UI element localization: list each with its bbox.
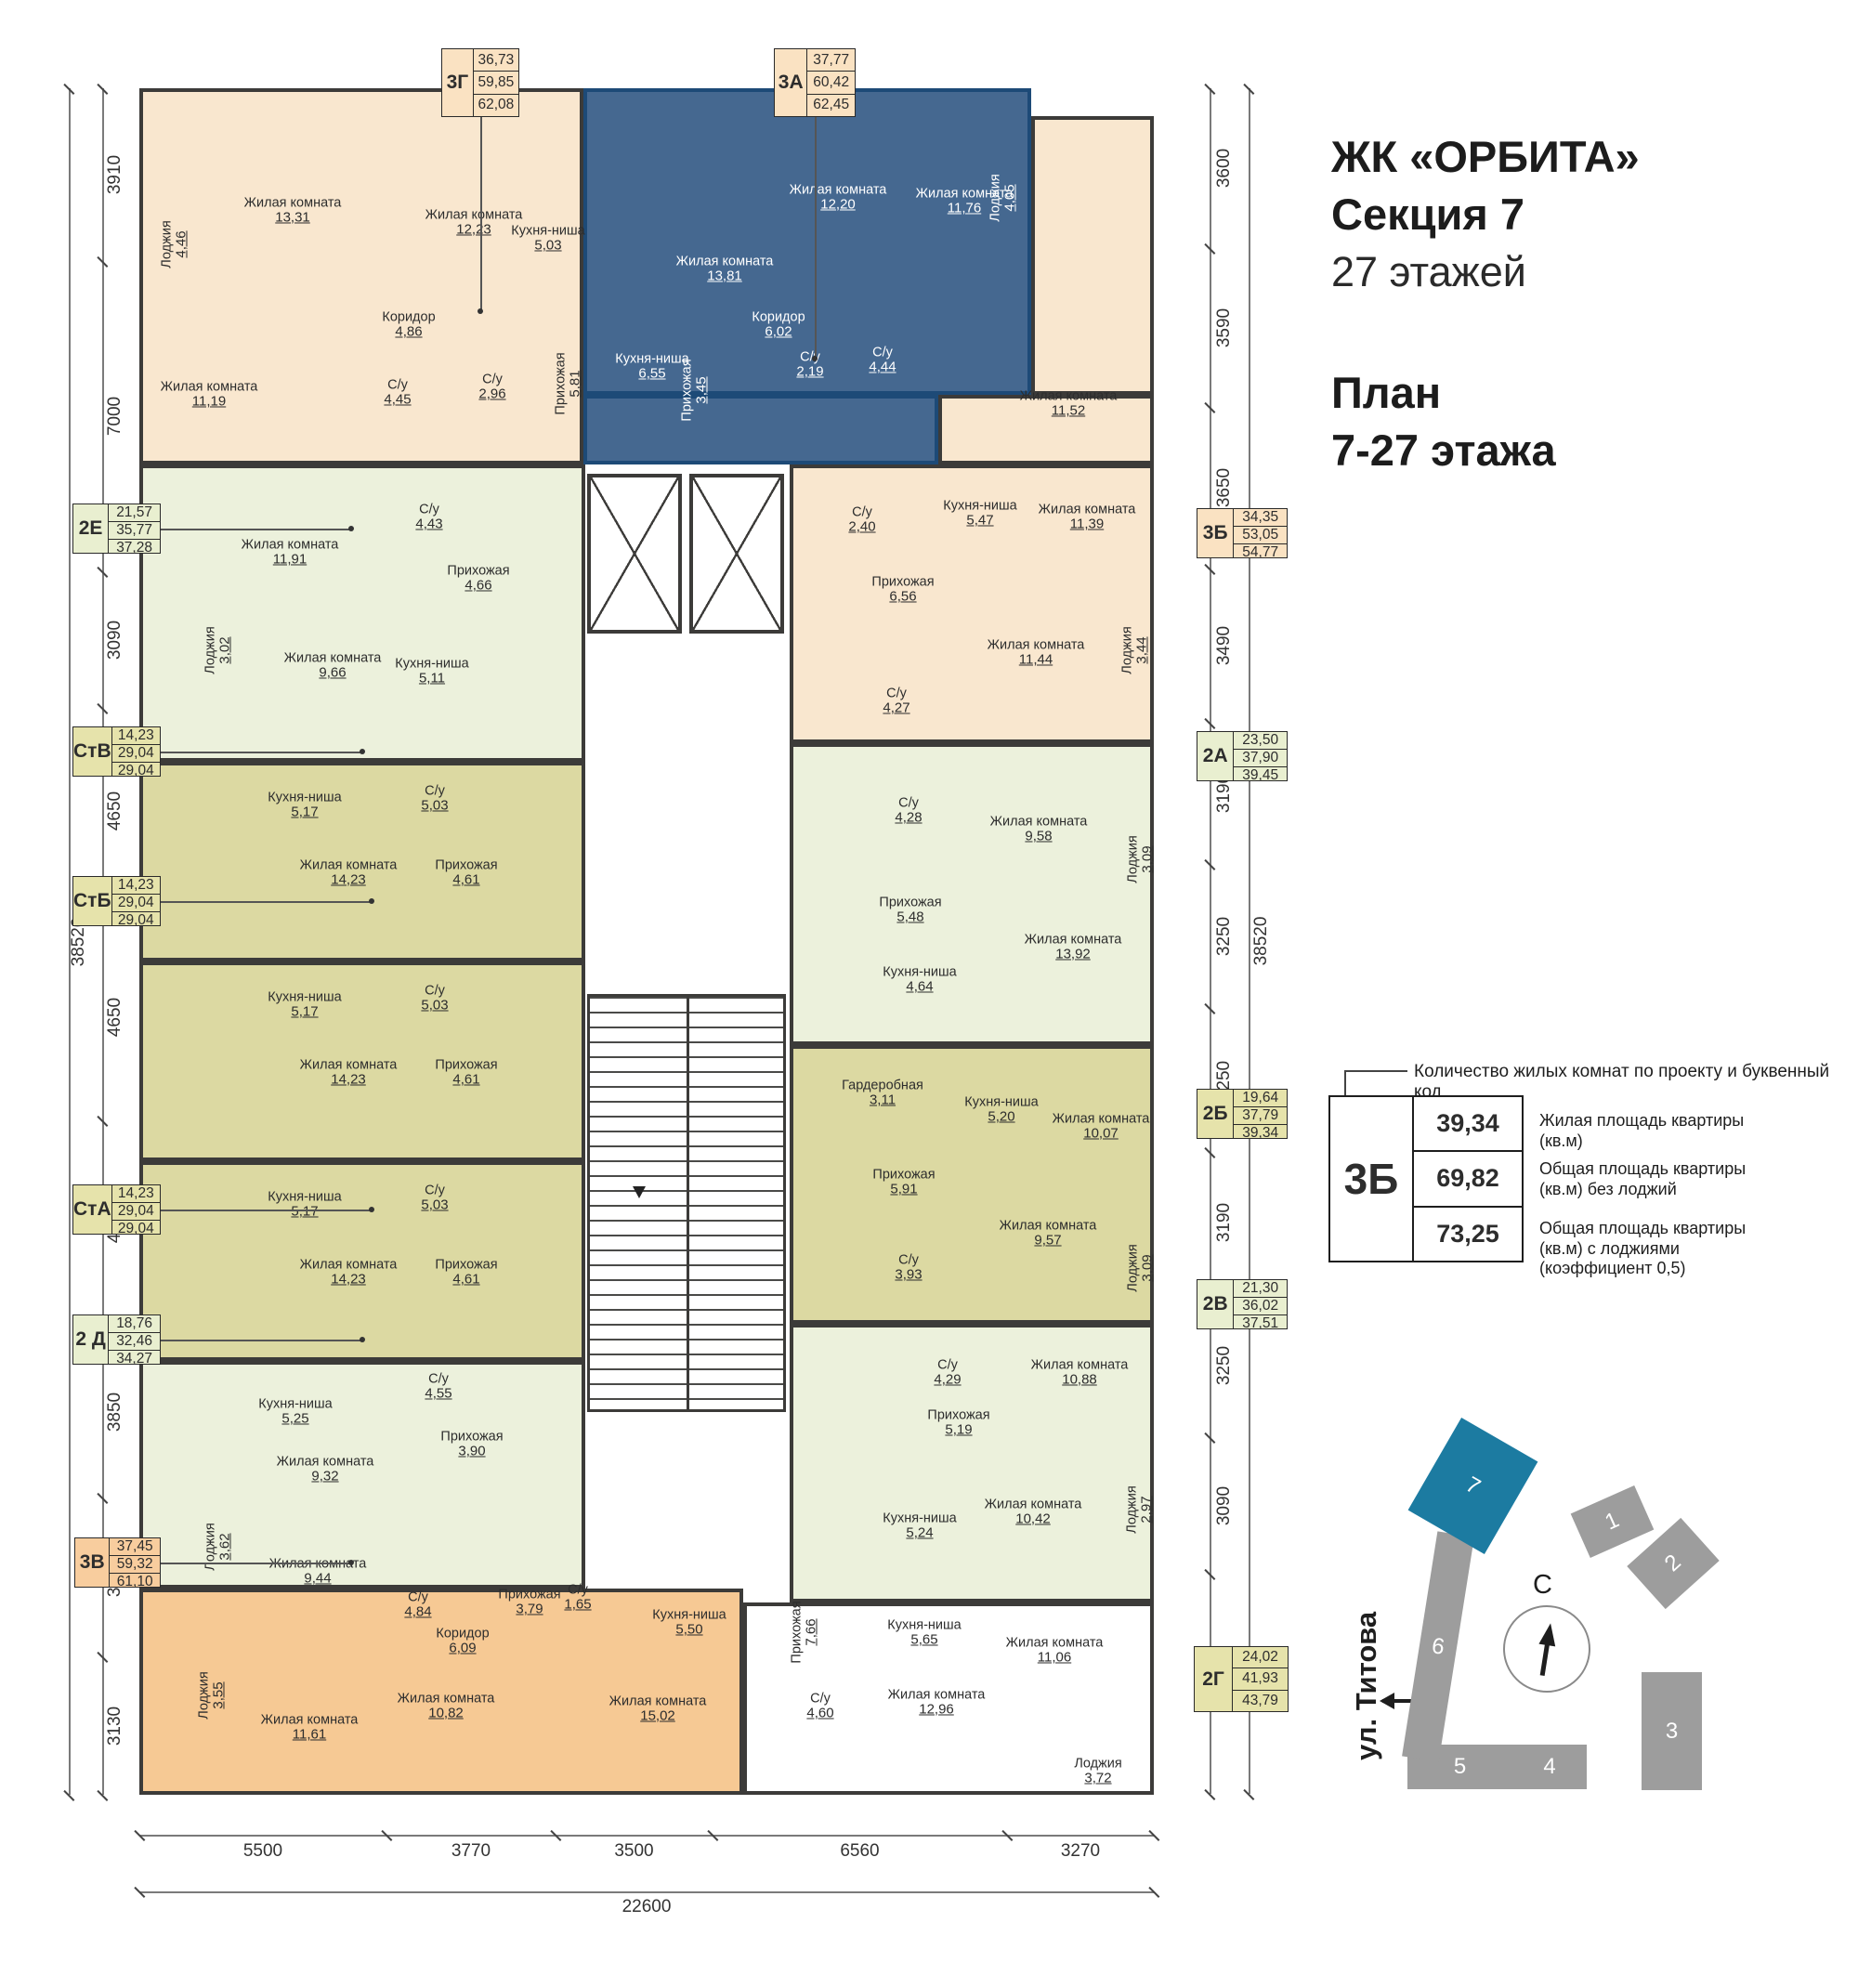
- legend-value-total-loggia: 73,25: [1414, 1206, 1522, 1261]
- site-building-number: 6: [1430, 1633, 1446, 1661]
- room-name: С/у: [895, 1252, 922, 1267]
- room-name: Прихожая: [679, 359, 694, 421]
- room-area: 5,03: [421, 799, 448, 815]
- room-name: Лоджия: [1119, 626, 1134, 674]
- room-name: Лоджия: [196, 1671, 211, 1719]
- room-label: Кухня-ниша5,47: [943, 498, 1016, 529]
- room-name: Жилая комната: [1000, 1218, 1097, 1233]
- room-label: Жилая комната11,39: [1039, 502, 1136, 532]
- leader-line: [815, 117, 817, 359]
- site-building-number: 2: [1660, 1550, 1687, 1577]
- room-name: Прихожая: [435, 1257, 497, 1272]
- room-area: 4,05: [1003, 174, 1019, 221]
- apartment-3a-region: [583, 395, 938, 464]
- room-area: 9,66: [284, 666, 382, 682]
- room-label: Жилая комната9,32: [277, 1454, 374, 1484]
- room-area: 11,61: [261, 1728, 359, 1744]
- room-label: Жилая комната10,07: [1053, 1111, 1150, 1142]
- room-name: С/у: [883, 686, 909, 700]
- room-label: Лоджия3,55: [196, 1671, 227, 1719]
- dimension-label: 3500: [614, 1841, 653, 1862]
- dimension-chain-line: [139, 1835, 1154, 1837]
- room-label: С/у4,84: [404, 1589, 431, 1620]
- room-area: 5,50: [652, 1623, 726, 1639]
- room-area: 4,45: [384, 393, 411, 409]
- room-label: Лоджия3,44: [1119, 626, 1150, 674]
- apartment-label-sta: СтА14,2329,0429,04: [72, 1184, 161, 1235]
- room-name: Жилая комната: [888, 1687, 986, 1702]
- room-name: Кухня-ниша: [883, 1511, 956, 1525]
- apartment-area-value: 37,77: [807, 49, 855, 71]
- apartment-area-value: 23,50: [1234, 732, 1287, 749]
- room-area: 11,91: [242, 553, 339, 569]
- room-area: 4,55: [425, 1387, 451, 1403]
- site-building-4: 4: [1512, 1745, 1587, 1789]
- room-name: Кухня-ниша: [615, 351, 688, 366]
- room-area: 3,93: [895, 1268, 922, 1284]
- leader-line: [161, 901, 372, 903]
- room-area: 5,17: [268, 805, 341, 821]
- apartment-area-value: 37,28: [109, 539, 160, 556]
- room-area: 4,86: [382, 325, 435, 341]
- room-name: Коридор: [436, 1626, 489, 1641]
- apartment-label-2b: 2Б19,6437,7939,34: [1197, 1089, 1288, 1139]
- apartment-area-value: 61,10: [110, 1573, 160, 1590]
- legend-example-code: 3Б: [1330, 1097, 1414, 1261]
- room-label: Коридор6,02: [752, 309, 805, 340]
- staircase: [587, 994, 786, 1412]
- room-area: 5,20: [964, 1110, 1038, 1126]
- elevator-shaft: [587, 474, 682, 634]
- apartment-area-value: 21,57: [109, 504, 160, 521]
- room-name: Кухня-ниша: [964, 1094, 1038, 1109]
- room-label: Жилая комната9,66: [284, 650, 382, 681]
- apartment-code: 2 Д: [73, 1315, 109, 1364]
- room-label: С/у2,19: [796, 349, 823, 380]
- room-label: Прихожая5,48: [879, 895, 941, 925]
- room-name: Кухня-ниша: [258, 1396, 332, 1411]
- dimension-label: 3090: [1214, 1485, 1235, 1524]
- room-area: 4,66: [447, 579, 509, 595]
- room-area: 9,58: [990, 830, 1088, 845]
- apartment-area-value: 34,35: [1234, 509, 1287, 526]
- room-area: 2,40: [848, 520, 875, 536]
- apartment-areas: 36,7359,8562,08: [474, 49, 518, 116]
- apartment-area-value: 53,05: [1234, 526, 1287, 543]
- room-label: Жилая комната13,31: [244, 195, 342, 226]
- leader-dot: [369, 1207, 374, 1212]
- room-label: С/у4,44: [869, 345, 896, 375]
- room-area: 4,28: [895, 811, 922, 827]
- room-area: 5,11: [395, 672, 468, 687]
- room-area: 7,66: [805, 1601, 820, 1663]
- room-label: Прихожая3,90: [440, 1429, 503, 1459]
- apartment-area-value: 29,04: [112, 1220, 160, 1237]
- dimension-label: 6560: [840, 1841, 879, 1862]
- apartment-label-3a: 3А37,7760,4262,45: [774, 48, 856, 117]
- complex-name: ЖК «ОРБИТА»: [1331, 128, 1640, 186]
- room-area: 4,84: [404, 1605, 431, 1621]
- site-building-number: 1: [1602, 1507, 1624, 1536]
- room-area: 11,44: [988, 653, 1085, 669]
- room-label: Жилая комната12,96: [888, 1687, 986, 1718]
- room-name: С/у: [564, 1582, 591, 1597]
- room-area: 5,47: [943, 514, 1016, 530]
- apartment-area-value: 35,77: [109, 521, 160, 539]
- room-name: Лоджия: [1125, 835, 1140, 883]
- apartment-areas: 37,4559,3261,10: [110, 1538, 160, 1587]
- room-name: Жилая комната: [277, 1454, 374, 1469]
- room-name: Жилая комната: [790, 182, 887, 197]
- room-name: Жилая комната: [161, 379, 258, 394]
- dimension-label: 3190: [1214, 1203, 1235, 1242]
- room-label: Прихожая5,91: [872, 1167, 935, 1197]
- room-label: Лоджия2,97: [1124, 1485, 1155, 1533]
- room-name: Коридор: [382, 309, 435, 324]
- legend-value-living: 39,34: [1414, 1097, 1522, 1150]
- apartment-area-value: 36,02: [1234, 1297, 1287, 1314]
- room-area: 9,44: [269, 1572, 367, 1588]
- room-label: Гардеробная3,11: [842, 1078, 923, 1108]
- room-name: С/у: [415, 502, 442, 517]
- room-label: Прихожая4,61: [435, 1057, 497, 1088]
- room-area: 3,09: [1141, 835, 1157, 883]
- dimension-label: 3130: [105, 1706, 125, 1745]
- legend-bracket: [1344, 1070, 1407, 1072]
- compass: [1503, 1605, 1590, 1693]
- room-label: Кухня-ниша5,17: [268, 790, 341, 820]
- room-label: Прихожая4,61: [435, 857, 497, 888]
- apartment-label-2a: 2А23,5037,9039,45: [1197, 731, 1288, 781]
- room-label: Кухня-ниша5,50: [652, 1607, 726, 1638]
- room-name: Жилая комната: [242, 537, 339, 552]
- apartment-area-value: 54,77: [1234, 543, 1287, 561]
- apartment-area-value: 37,90: [1234, 749, 1287, 766]
- apartment-code: 2А: [1197, 732, 1234, 780]
- room-area: 4,29: [934, 1373, 961, 1389]
- apartment-area-value: 29,04: [112, 762, 160, 779]
- site-plan: С ул. Титова 1234567: [1338, 1393, 1858, 1895]
- apartment-area-value: 37,45: [110, 1538, 160, 1555]
- apartment-area-value: 41,93: [1233, 1668, 1288, 1689]
- room-name: Жилая комната: [1006, 1635, 1104, 1650]
- room-name: Прихожая: [927, 1407, 989, 1422]
- room-label: Коридор6,09: [436, 1626, 489, 1656]
- room-area: 5,81: [569, 352, 584, 414]
- room-area: 5,91: [872, 1183, 935, 1198]
- room-label: Лоджия4,05: [988, 174, 1018, 221]
- dimension-label: 5500: [243, 1841, 282, 1862]
- apartment-areas: 21,3036,0237,51: [1234, 1280, 1287, 1328]
- spacer: [1331, 301, 1640, 364]
- apartment-2a-region: [790, 743, 1154, 1045]
- room-area: 11,39: [1039, 517, 1136, 533]
- north-arrow-icon: [1531, 1614, 1564, 1681]
- room-name: Лоджия: [1125, 1244, 1140, 1291]
- apartment-label-2e: 2Е21,5735,7737,28: [72, 504, 161, 554]
- room-area: 4,43: [415, 517, 442, 533]
- apartment-areas: 14,2329,0429,04: [112, 877, 160, 925]
- room-name: Жилая комната: [1025, 932, 1122, 947]
- room-area: 10,42: [985, 1512, 1082, 1528]
- north-label: С: [1533, 1570, 1552, 1601]
- site-building-1: 1: [1571, 1485, 1655, 1558]
- leader-dot: [478, 308, 483, 314]
- apartment-code: 2Е: [73, 504, 109, 553]
- room-area: 10,88: [1031, 1373, 1129, 1389]
- room-label: Кухня-ниша5,20: [964, 1094, 1038, 1125]
- room-name: Прихожая: [872, 1167, 935, 1182]
- room-name: Жилая комната: [1020, 388, 1118, 403]
- room-name: Кухня-ниша: [268, 790, 341, 804]
- room-name: Жилая комната: [300, 1257, 398, 1272]
- room-area: 4,61: [435, 873, 497, 889]
- room-label: Жилая комната13,92: [1025, 932, 1122, 962]
- apartment-area-value: 36,73: [474, 49, 518, 71]
- room-label: С/у4,43: [415, 502, 442, 532]
- leader-dot: [360, 1337, 365, 1342]
- room-name: Прихожая: [498, 1587, 560, 1602]
- room-area: 5,03: [421, 999, 448, 1014]
- site-building-number: 4: [1543, 1754, 1555, 1780]
- room-area: 5,24: [883, 1526, 956, 1542]
- room-name: Жилая комната: [284, 650, 382, 665]
- room-name: Кухня-ниша: [395, 656, 468, 671]
- room-name: С/у: [421, 783, 448, 798]
- apartment-3b-region: [1031, 116, 1154, 395]
- room-area: 13,31: [244, 211, 342, 227]
- room-name: Прихожая: [871, 574, 934, 589]
- room-area: 2,97: [1140, 1485, 1156, 1533]
- site-building-number: 5: [1454, 1754, 1466, 1780]
- dimension-label: 3590: [1214, 307, 1235, 347]
- apartment-area-value: 29,04: [112, 911, 160, 929]
- room-label: Кухня-ниша5,25: [258, 1396, 332, 1427]
- room-name: Кухня-ниша: [268, 1189, 341, 1204]
- leader-line: [161, 529, 351, 530]
- apartment-area-value: 14,23: [112, 727, 160, 744]
- apartment-areas: 24,0241,9343,79: [1233, 1647, 1288, 1711]
- room-label: Жилая комната11,91: [242, 537, 339, 568]
- room-area: 3,45: [695, 359, 711, 421]
- room-area: 10,07: [1053, 1127, 1150, 1143]
- room-label: Жилая комната13,81: [676, 254, 774, 284]
- room-area: 11,06: [1006, 1651, 1104, 1667]
- dimension-label: 3850: [105, 1393, 125, 1432]
- room-area: 15,02: [609, 1709, 707, 1725]
- room-name: Жилая комната: [990, 814, 1088, 829]
- room-area: 1,65: [564, 1598, 591, 1614]
- room-area: 5,17: [268, 1005, 341, 1021]
- dimension-label: 3650: [1214, 468, 1235, 507]
- leader-line: [161, 1340, 362, 1341]
- room-name: Прихожая: [440, 1429, 503, 1444]
- dimension-label: 3600: [1214, 149, 1235, 188]
- apartment-areas: 37,7760,4262,45: [807, 49, 855, 116]
- room-label: Прихожая5,81: [553, 352, 583, 414]
- room-label: Лоджия3,72: [1074, 1756, 1121, 1786]
- room-label: Жилая комната14,23: [300, 1257, 398, 1288]
- dimension-label: 4650: [105, 791, 125, 831]
- site-building-7: 7: [1408, 1418, 1538, 1554]
- room-name: С/у: [934, 1357, 961, 1372]
- room-name: Прихожая: [435, 857, 497, 872]
- room-label: Коридор4,86: [382, 309, 435, 340]
- apartment-area-value: 14,23: [112, 1185, 160, 1202]
- room-label: Жилая комната9,58: [990, 814, 1088, 844]
- room-name: Жилая комната: [676, 254, 774, 268]
- room-area: 3,90: [440, 1445, 503, 1460]
- room-label: Кухня-ниша5,17: [268, 989, 341, 1020]
- room-name: Кухня-ниша: [883, 964, 956, 979]
- room-label: Кухня-ниша5,17: [268, 1189, 341, 1220]
- room-label: Жилая комната14,23: [300, 1057, 398, 1088]
- room-area: 12,96: [888, 1703, 986, 1719]
- floor-plan-page: Лоджия4,46Жилая комната13,31Жилая комнат…: [0, 0, 1858, 1988]
- room-name: Кухня-ниша: [268, 989, 341, 1004]
- room-label: Жилая комната10,82: [398, 1691, 495, 1721]
- apartment-area-value: 34,27: [109, 1350, 160, 1367]
- apartment-label-3v: 3В37,4559,3261,10: [74, 1537, 161, 1588]
- room-name: Жилая комната: [300, 857, 398, 872]
- plan-label: План: [1331, 364, 1640, 422]
- elevator-shaft: [689, 474, 784, 634]
- apartment-area-value: 21,30: [1234, 1280, 1287, 1297]
- room-name: Гардеробная: [842, 1078, 923, 1092]
- room-label: С/у5,03: [421, 1183, 448, 1213]
- room-area: 14,23: [300, 873, 398, 889]
- dimension-total-label: 22600: [622, 1897, 672, 1917]
- apartment-areas: 14,2329,0429,04: [112, 1185, 160, 1234]
- room-label: С/у4,55: [425, 1371, 451, 1402]
- room-label: С/у4,27: [883, 686, 909, 716]
- room-label: Жилая комната12,20: [790, 182, 887, 213]
- room-name: Жилая комната: [609, 1694, 707, 1708]
- room-label: Прихожая4,61: [435, 1257, 497, 1288]
- legend-desc-total-loggia: Общая площадь квартиры (кв.м) с лоджиями…: [1539, 1219, 1753, 1279]
- apartment-area-value: 62,45: [807, 94, 855, 116]
- room-label: Жилая комната11,52: [1020, 388, 1118, 419]
- apartment-label-3g: 3Г36,7359,8562,08: [441, 48, 519, 117]
- room-label: Кухня-ниша5,24: [883, 1511, 956, 1541]
- leader-dot: [348, 1560, 354, 1565]
- room-name: С/у: [425, 1371, 451, 1386]
- apartment-areas: 19,6437,7939,34: [1234, 1090, 1287, 1138]
- apartment-label-stv: СтВ14,2329,0429,04: [72, 726, 161, 777]
- leader-line: [161, 1210, 372, 1211]
- room-label: Кухня-ниша5,03: [511, 223, 584, 254]
- room-label: С/у3,93: [895, 1252, 922, 1283]
- room-name: Прихожая: [435, 1057, 497, 1072]
- room-area: 5,03: [421, 1198, 448, 1214]
- apartment-area-value: 29,04: [112, 744, 160, 762]
- room-label: Жилая комната10,42: [985, 1497, 1082, 1527]
- room-area: 13,92: [1025, 948, 1122, 963]
- room-name: Жилая комната: [985, 1497, 1082, 1511]
- room-label: Жилая комната12,23: [425, 207, 523, 238]
- room-area: 11,19: [161, 395, 258, 411]
- room-label: Прихожая7,66: [789, 1601, 819, 1663]
- staircase-divider: [687, 997, 689, 1409]
- leader-dot: [348, 526, 354, 531]
- room-area: 3,11: [842, 1093, 923, 1109]
- room-label: Жилая комната9,57: [1000, 1218, 1097, 1249]
- room-area: 3,44: [1135, 626, 1151, 674]
- room-label: С/у5,03: [421, 783, 448, 814]
- room-name: Жилая комната: [1053, 1111, 1150, 1126]
- room-label: Кухня-ниша5,65: [887, 1617, 961, 1648]
- room-label: Лоджия3,09: [1125, 1244, 1156, 1291]
- apartment-code: 3А: [775, 49, 807, 116]
- site-building-6: 6: [1402, 1531, 1474, 1761]
- legend-desc-living: Жилая площадь квартиры (кв.м): [1539, 1111, 1753, 1151]
- apartment-area-value: 24,02: [1233, 1647, 1288, 1668]
- room-name: Жилая комната: [244, 195, 342, 210]
- legend-bracket: [1344, 1070, 1346, 1095]
- room-name: Лоджия: [159, 220, 174, 268]
- room-area: 3,79: [498, 1602, 560, 1618]
- apartment-area-value: 37,51: [1234, 1314, 1287, 1332]
- apartment-area-value: 62,08: [474, 94, 518, 116]
- room-label: Жилая комната11,61: [261, 1712, 359, 1743]
- room-name: С/у: [421, 983, 448, 998]
- dimension-label: 3490: [1214, 626, 1235, 665]
- room-name: Прихожая: [879, 895, 941, 909]
- room-area: 13,81: [676, 269, 774, 285]
- room-area: 6,56: [871, 590, 934, 606]
- leader-dot: [369, 898, 374, 904]
- legend-value-total: 69,82: [1414, 1150, 1522, 1205]
- room-area: 9,32: [277, 1470, 374, 1485]
- room-label: Прихожая3,45: [679, 359, 710, 421]
- room-name: Жилая комната: [1039, 502, 1136, 517]
- room-area: 4,60: [806, 1707, 833, 1722]
- dimension-total-line: [1249, 88, 1250, 1794]
- leader-dot: [812, 356, 818, 361]
- apartment-label-2v: 2В21,3036,0237,51: [1197, 1279, 1288, 1329]
- dimension-label: 3770: [451, 1841, 491, 1862]
- room-label: С/у4,29: [934, 1357, 961, 1388]
- room-area: 10,82: [398, 1707, 495, 1722]
- room-area: 4,64: [883, 980, 956, 996]
- apartment-label-2d: 2 Д18,7632,4634,27: [72, 1314, 161, 1365]
- room-area: 14,23: [300, 1073, 398, 1089]
- legend-example-box: 3Б 39,34 69,82 73,25: [1328, 1095, 1524, 1262]
- room-area: 9,57: [1000, 1234, 1097, 1249]
- room-label: Жилая комната11,19: [161, 379, 258, 410]
- floor-plan-drawing: Лоджия4,46Жилая комната13,31Жилая комнат…: [139, 88, 1154, 1795]
- site-building-number: 3: [1666, 1719, 1678, 1745]
- leader-line: [161, 1563, 351, 1564]
- room-name: Лоджия: [1124, 1485, 1139, 1533]
- apartment-area-value: 59,85: [474, 71, 518, 93]
- room-area: 12,20: [790, 198, 887, 214]
- dimension-label: 3250: [1214, 1345, 1235, 1384]
- room-area: 5,03: [511, 239, 584, 255]
- floors-count: 27 этажей: [1331, 243, 1640, 301]
- apartment-areas: 18,7632,4634,27: [109, 1315, 160, 1364]
- room-name: Лоджия: [203, 626, 217, 674]
- room-name: Жилая комната: [425, 207, 523, 222]
- apartment-label-stb: СтБ14,2329,0429,04: [72, 876, 161, 926]
- leader-dot: [360, 749, 365, 754]
- apartment-code: СтБ: [73, 877, 112, 925]
- room-name: С/у: [478, 372, 505, 386]
- room-area: 6,02: [752, 325, 805, 341]
- room-label: Жилая комната11,44: [988, 637, 1085, 668]
- room-label: Жилая комната15,02: [609, 1694, 707, 1724]
- apartment-2e-region: [139, 464, 585, 762]
